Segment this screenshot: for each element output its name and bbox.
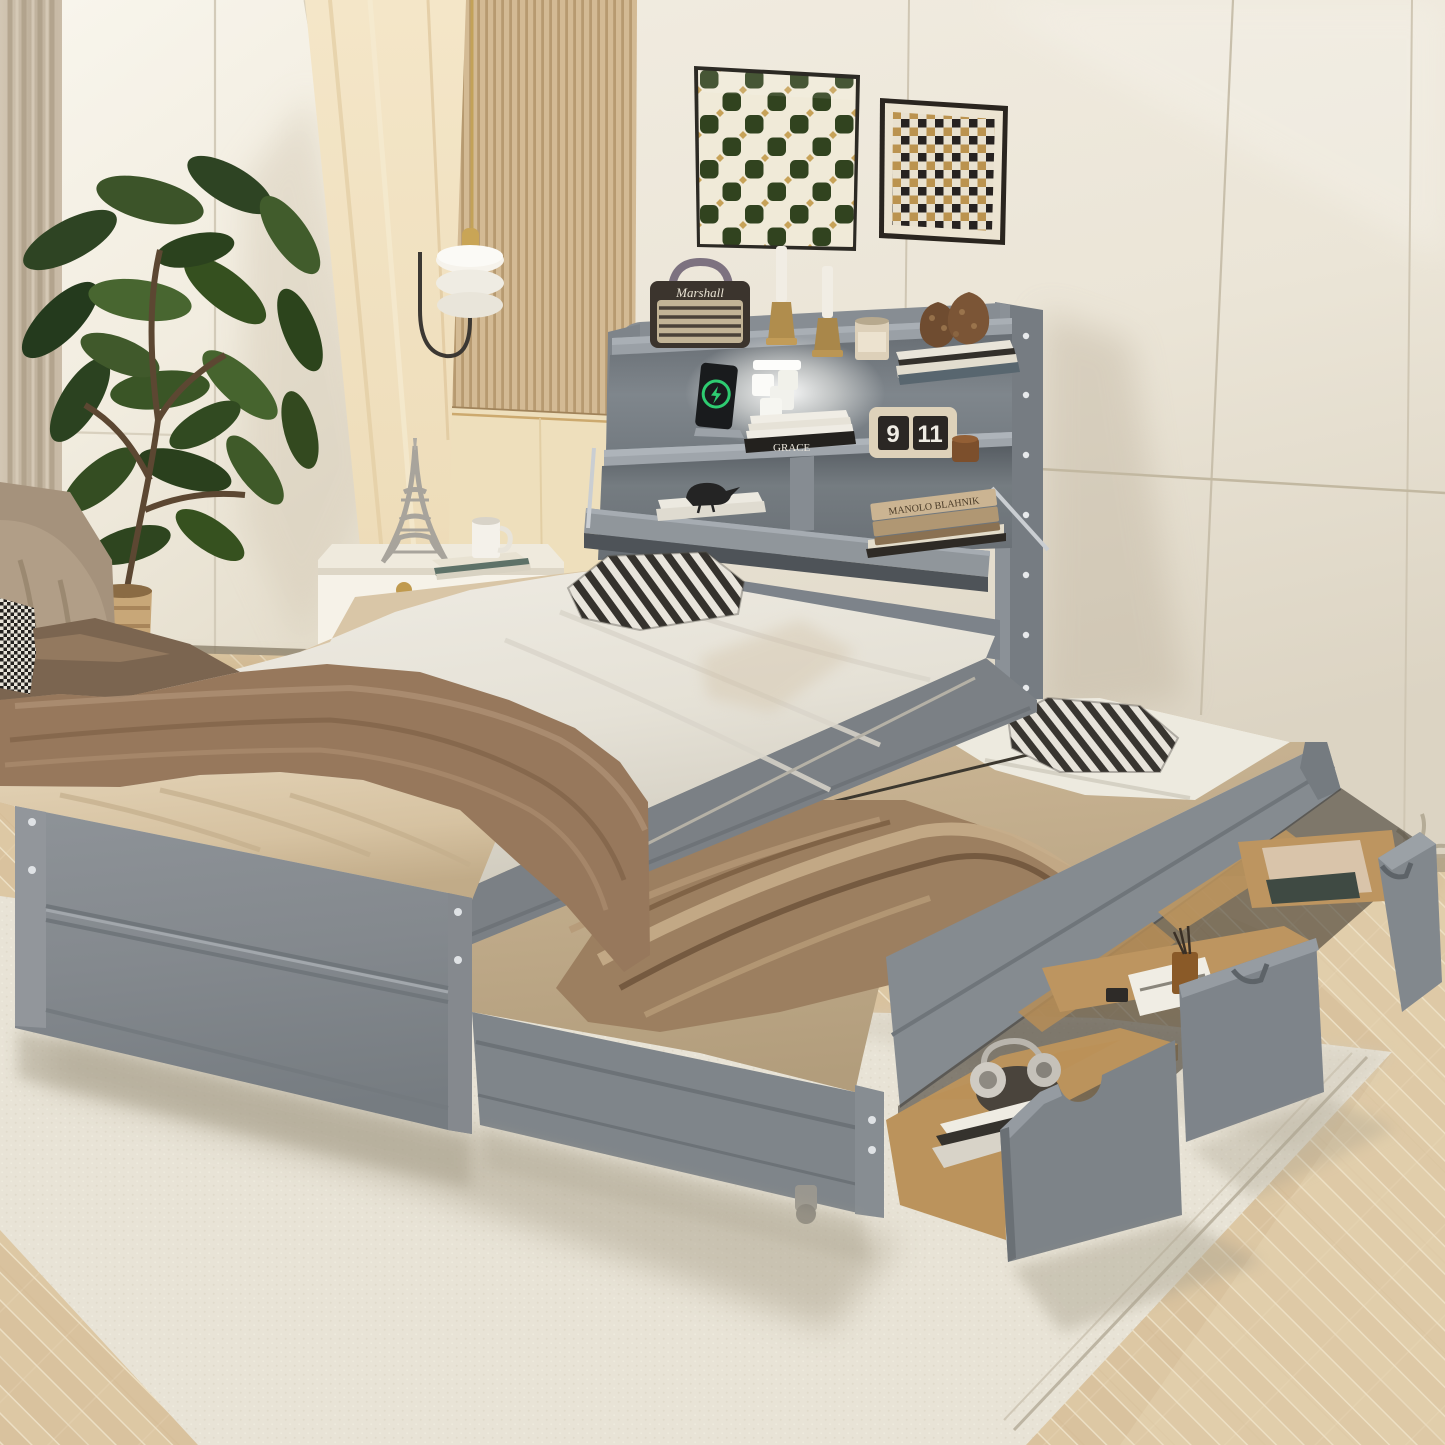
- svg-text:Marshall: Marshall: [675, 285, 724, 300]
- svg-text:9: 9: [886, 421, 899, 448]
- svg-text:11: 11: [917, 421, 942, 448]
- svg-text:GRACE: GRACE: [773, 442, 811, 454]
